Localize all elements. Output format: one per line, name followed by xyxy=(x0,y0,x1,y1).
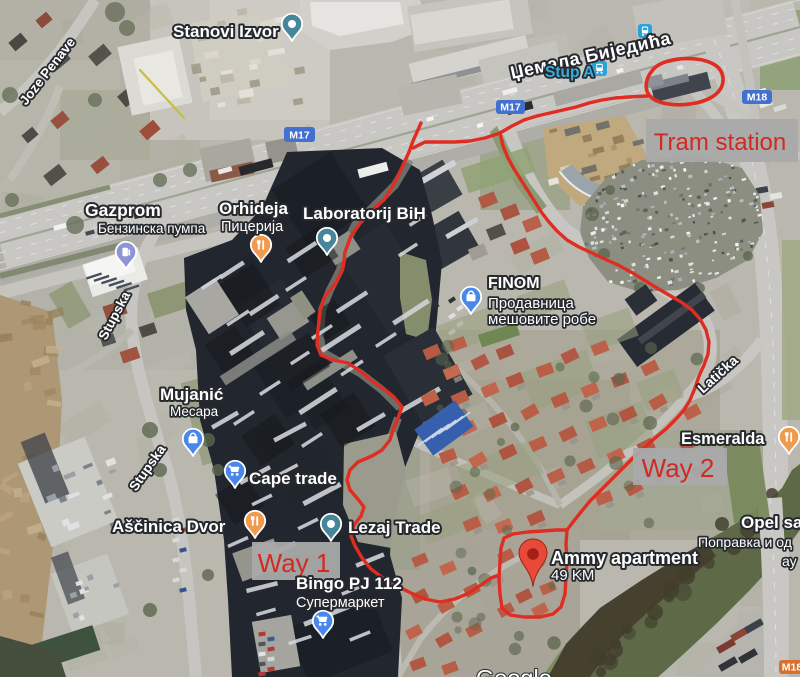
svg-text:Поправка и од: Поправка и од xyxy=(698,534,792,550)
svg-text:Бензинска пумпа: Бензинска пумпа xyxy=(98,221,206,236)
svg-text:M18: M18 xyxy=(747,92,768,104)
svg-text:Laboratorij BiH: Laboratorij BiH xyxy=(303,204,426,223)
svg-text:FINOM: FINOM xyxy=(488,275,540,292)
svg-text:Bingo PJ 112: Bingo PJ 112 xyxy=(296,574,402,593)
svg-text:Orhideja: Orhideja xyxy=(219,199,289,218)
svg-text:Пицерија: Пицерија xyxy=(221,219,284,235)
svg-text:Opel sa: Opel sa xyxy=(741,513,800,532)
svg-text:Esmeralda: Esmeralda xyxy=(681,430,765,448)
svg-text:ау: ау xyxy=(782,553,797,569)
svg-text:M17: M17 xyxy=(500,102,521,114)
svg-text:Way 2: Way 2 xyxy=(642,453,715,483)
svg-text:Cape trade: Cape trade xyxy=(249,469,337,488)
svg-text:Stup A: Stup A xyxy=(545,64,594,81)
svg-text:Tram station: Tram station xyxy=(654,129,786,156)
svg-text:Ammy apartment: Ammy apartment xyxy=(551,548,698,568)
svg-text:Gazprom: Gazprom xyxy=(85,200,161,220)
svg-text:мешовите робе: мешовите робе xyxy=(488,311,596,328)
svg-text:49 KM: 49 KM xyxy=(551,567,594,584)
svg-text:Stanovi Izvor: Stanovi Izvor xyxy=(173,22,279,41)
svg-text:Месара: Месара xyxy=(170,404,219,419)
svg-text:Google: Google xyxy=(476,665,552,677)
svg-text:Продавница: Продавница xyxy=(488,295,574,312)
svg-text:Aščinica Dvor: Aščinica Dvor xyxy=(112,517,226,536)
svg-text:Супермаркет: Супермаркет xyxy=(296,595,385,611)
svg-text:Lezaj Trade: Lezaj Trade xyxy=(348,518,441,537)
svg-text:Mujanić: Mujanić xyxy=(160,385,223,404)
svg-text:M17: M17 xyxy=(289,130,310,142)
svg-text:M18: M18 xyxy=(782,662,800,674)
